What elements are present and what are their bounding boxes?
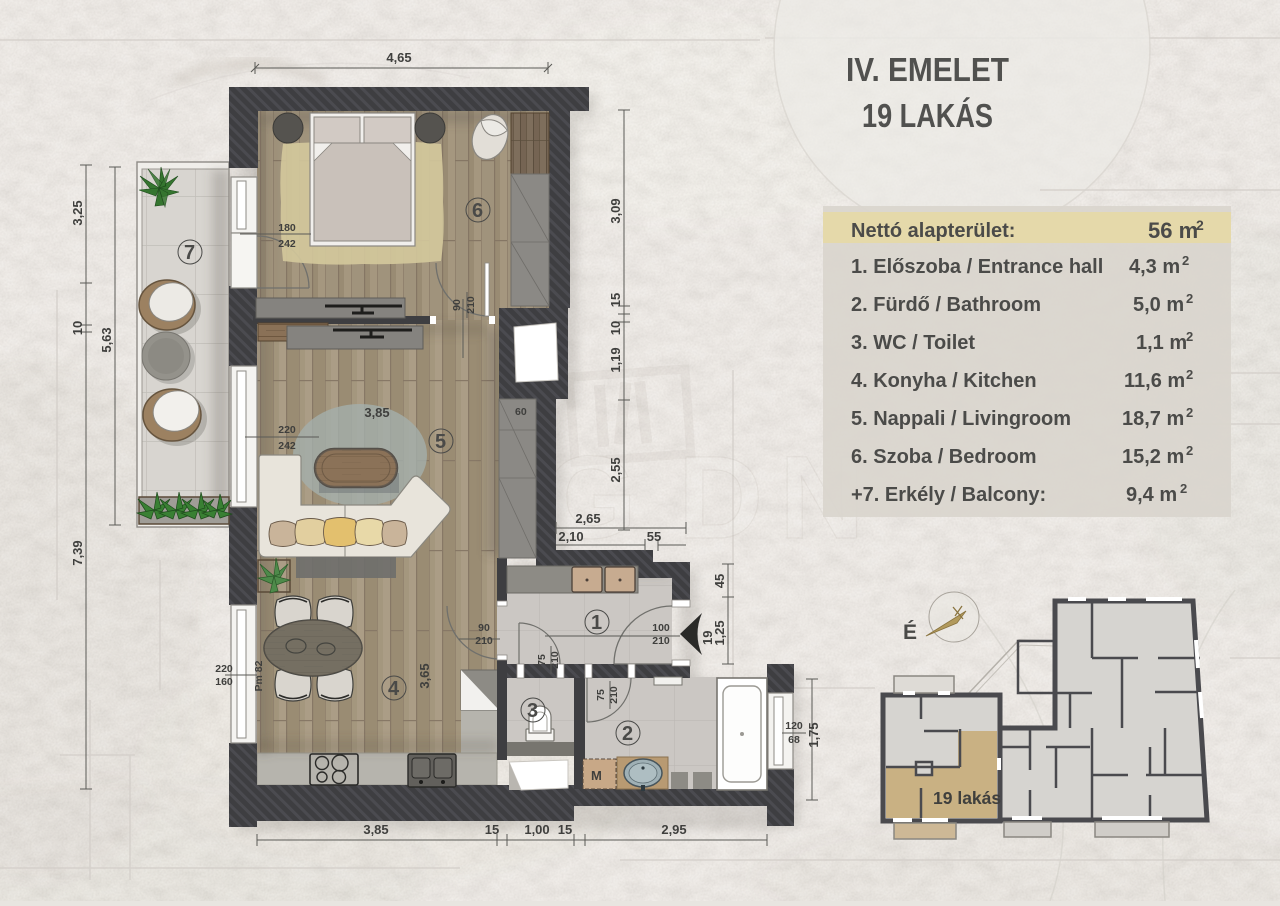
svg-text:1. Előszoba / Entrance hall: 1. Előszoba / Entrance hall xyxy=(851,256,1103,278)
svg-text:5. Nappali / Livingroom: 5. Nappali / Livingroom xyxy=(851,408,1071,430)
svg-text:3,09: 3,09 xyxy=(608,198,623,223)
svg-text:2: 2 xyxy=(1182,253,1189,268)
svg-text:56 m: 56 m xyxy=(1148,218,1198,243)
svg-text:6. Szoba / Bedroom: 6. Szoba / Bedroom xyxy=(851,446,1037,468)
svg-text:1,00: 1,00 xyxy=(524,822,549,837)
svg-text:242: 242 xyxy=(278,440,296,452)
svg-text:10: 10 xyxy=(70,321,85,335)
svg-text:242: 242 xyxy=(278,238,296,250)
svg-text:2,10: 2,10 xyxy=(558,529,583,544)
svg-text:15,2 m: 15,2 m xyxy=(1122,446,1184,468)
svg-text:3: 3 xyxy=(527,700,538,722)
svg-text:15: 15 xyxy=(485,822,499,837)
svg-text:45: 45 xyxy=(712,574,727,588)
svg-text:1,1 m: 1,1 m xyxy=(1136,332,1187,354)
svg-text:60: 60 xyxy=(515,406,527,418)
svg-text:3,65: 3,65 xyxy=(417,663,432,688)
svg-text:100: 100 xyxy=(652,622,670,634)
svg-text:4. Konyha / Kitchen: 4. Konyha / Kitchen xyxy=(851,370,1037,392)
svg-text:19 lakás: 19 lakás xyxy=(933,788,1001,808)
svg-text:3. WC / Toilet: 3. WC / Toilet xyxy=(851,332,975,354)
svg-text:2: 2 xyxy=(1186,291,1193,306)
svg-text:15: 15 xyxy=(558,822,572,837)
svg-text:75: 75 xyxy=(595,689,607,701)
svg-text:18,7 m: 18,7 m xyxy=(1122,408,1184,430)
svg-text:Pm 82: Pm 82 xyxy=(253,660,265,691)
svg-text:160: 160 xyxy=(215,676,233,688)
svg-text:3,85: 3,85 xyxy=(364,405,389,420)
svg-text:3,25: 3,25 xyxy=(70,200,85,225)
svg-text:68: 68 xyxy=(788,734,800,746)
svg-text:2: 2 xyxy=(1180,481,1187,496)
svg-text:120: 120 xyxy=(785,720,803,732)
svg-text:9,4 m: 9,4 m xyxy=(1126,484,1177,506)
svg-text:90: 90 xyxy=(478,622,490,634)
svg-text:2: 2 xyxy=(1196,217,1204,233)
svg-text:2: 2 xyxy=(1186,367,1193,382)
svg-text:19 LAKÁS: 19 LAKÁS xyxy=(862,97,993,134)
svg-text:Nettó alapterület:: Nettó alapterület: xyxy=(851,220,1015,242)
svg-text:5,63: 5,63 xyxy=(99,327,114,352)
svg-text:4,65: 4,65 xyxy=(386,50,411,65)
svg-text:2: 2 xyxy=(1186,329,1193,344)
svg-text:5: 5 xyxy=(435,431,446,453)
svg-text:4,3 m: 4,3 m xyxy=(1129,256,1180,278)
svg-text:+7. Erkély / Balcony:: +7. Erkély / Balcony: xyxy=(851,484,1046,506)
svg-text:11,6 m: 11,6 m xyxy=(1124,370,1185,392)
svg-text:M: M xyxy=(591,768,602,783)
svg-text:2: 2 xyxy=(1186,405,1193,420)
svg-text:2. Fürdő / Bathroom: 2. Fürdő / Bathroom xyxy=(851,294,1041,316)
svg-text:10: 10 xyxy=(608,321,623,335)
svg-text:210: 210 xyxy=(652,635,670,647)
svg-text:5,0 m: 5,0 m xyxy=(1133,294,1184,316)
svg-text:90: 90 xyxy=(451,299,463,311)
svg-text:55: 55 xyxy=(647,529,661,544)
svg-text:2,65: 2,65 xyxy=(575,511,600,526)
svg-text:IV. EMELET: IV. EMELET xyxy=(846,51,1009,88)
svg-text:6: 6 xyxy=(472,200,483,222)
svg-text:3,85: 3,85 xyxy=(363,822,388,837)
svg-text:2: 2 xyxy=(622,723,633,745)
svg-text:15: 15 xyxy=(608,293,623,307)
svg-text:2,55: 2,55 xyxy=(608,457,623,482)
svg-text:220: 220 xyxy=(278,424,296,436)
svg-text:2: 2 xyxy=(1186,443,1193,458)
svg-text:1: 1 xyxy=(591,612,602,634)
svg-text:210: 210 xyxy=(475,635,493,647)
svg-text:7,39: 7,39 xyxy=(70,540,85,565)
svg-text:220: 220 xyxy=(215,663,233,675)
svg-text:7: 7 xyxy=(184,242,195,264)
svg-text:1,75: 1,75 xyxy=(806,722,821,747)
svg-text:2,95: 2,95 xyxy=(661,822,686,837)
svg-text:1,19: 1,19 xyxy=(608,347,623,372)
svg-text:180: 180 xyxy=(278,222,296,234)
svg-text:É: É xyxy=(903,621,917,644)
svg-text:4: 4 xyxy=(388,678,400,700)
svg-text:75: 75 xyxy=(536,654,548,666)
svg-text:1,25: 1,25 xyxy=(712,620,727,645)
